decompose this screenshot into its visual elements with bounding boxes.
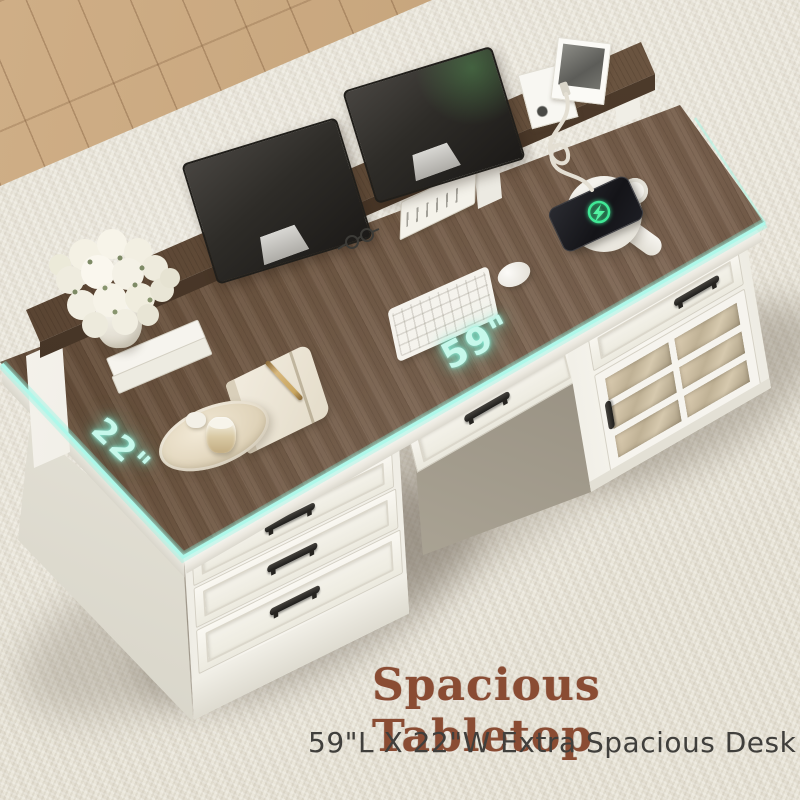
product-scene: 59" 22" Spacious Tabletop 59"L X 22"W Ex…: [0, 0, 800, 800]
glass-cup: [206, 417, 236, 453]
photo-card-back: [550, 37, 611, 105]
flower-vase: [95, 301, 143, 349]
small-dish: [186, 412, 206, 428]
photo-mark: [535, 102, 549, 118]
caption-subtitle: 59"L X 22"W Extra Spacious Desk: [308, 726, 796, 759]
photo-print: [558, 44, 605, 90]
cup-rim: [209, 419, 233, 429]
